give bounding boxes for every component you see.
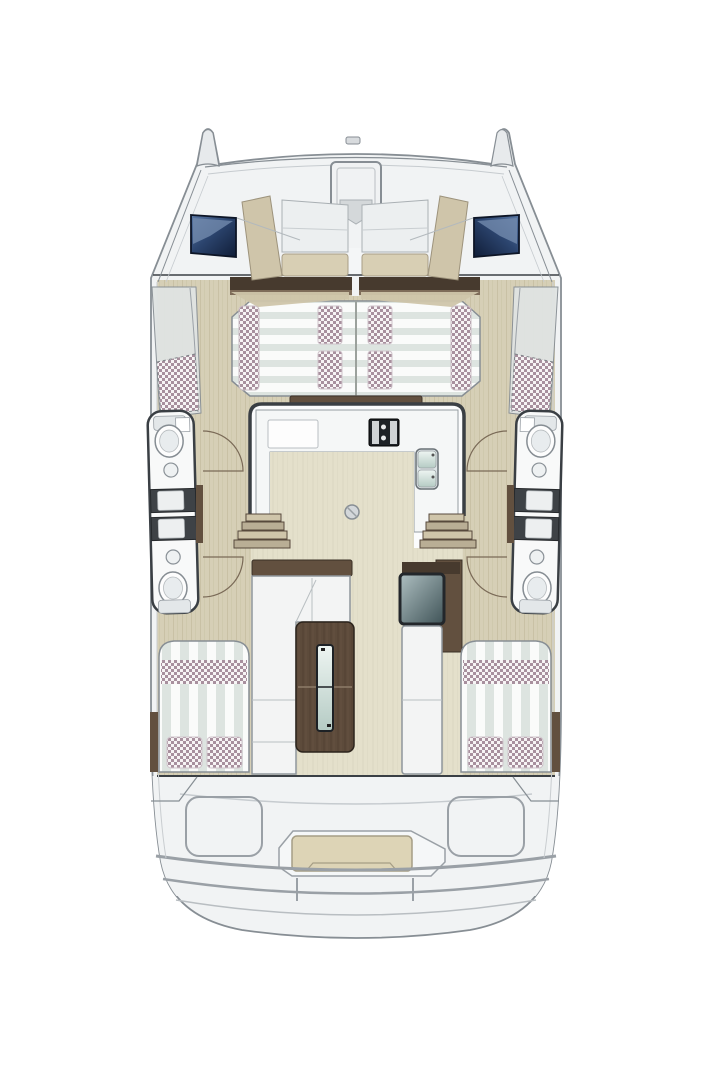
washbasin-forward bbox=[164, 463, 178, 477]
bathroom-pod bbox=[147, 410, 198, 613]
nav-top-bar bbox=[402, 562, 460, 574]
aft-berth-blanket-band bbox=[161, 660, 247, 684]
berth-bolster bbox=[239, 306, 259, 390]
nav-table bbox=[400, 574, 444, 624]
aft-berth-pillow-2 bbox=[207, 737, 242, 768]
mast-foot bbox=[345, 505, 359, 519]
bow-hull-cushion bbox=[157, 354, 199, 416]
counter-hatch bbox=[268, 420, 318, 448]
hull-partition bbox=[196, 485, 203, 543]
floor-plan-svg bbox=[0, 0, 718, 1080]
catamaran-floor-plan bbox=[0, 0, 718, 1080]
bulkhead-gap bbox=[352, 276, 359, 296]
bow-fitting bbox=[346, 137, 360, 144]
cockpit-seat-cushion bbox=[282, 254, 348, 276]
table-glass-insert bbox=[317, 645, 333, 731]
berth-pillow-2 bbox=[318, 351, 342, 389]
sofa-back-trim bbox=[252, 560, 352, 576]
cockpit-backrest bbox=[282, 200, 348, 252]
double-sink bbox=[416, 449, 438, 489]
forward-berth bbox=[232, 301, 480, 408]
aft-berth bbox=[150, 641, 249, 772]
aft-berth-pillow-1 bbox=[167, 737, 202, 768]
stove bbox=[369, 419, 399, 446]
washbasin-aft bbox=[166, 550, 180, 564]
galley-floor bbox=[270, 452, 414, 548]
aft-berth-trim bbox=[150, 712, 158, 772]
salon-table bbox=[296, 622, 354, 752]
bow-tip bbox=[197, 130, 219, 167]
berth-pillow-1 bbox=[318, 306, 342, 344]
